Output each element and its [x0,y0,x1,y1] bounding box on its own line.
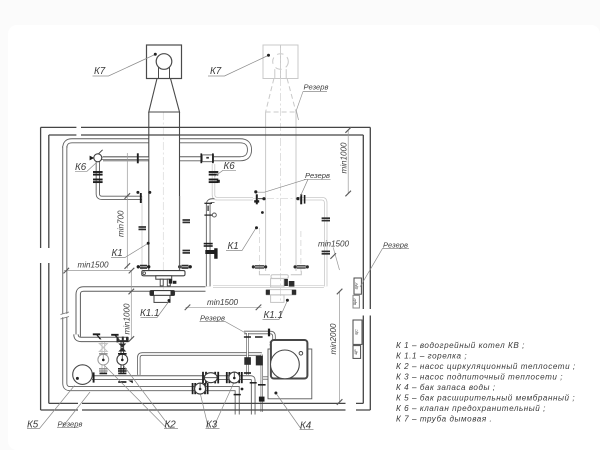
svg-text:min1500: min1500 [207,298,239,307]
svg-text:min700: min700 [117,210,126,237]
svg-text:Резерв: Резерв [305,171,330,180]
svg-text:К 2 – насос циркуляционный: К 2 – насос циркуляционный теплосети ; [396,362,576,371]
svg-text:К 6 – клапан предохранитель: К 6 – клапан предохранительный ; [396,404,546,413]
svg-text:ЩС: ЩС [355,329,359,335]
svg-text:К 5 – бак расширительный ме: К 5 – бак расширительный мембранный ; [396,394,575,403]
svg-text:К6: К6 [224,161,236,172]
svg-text:К2: К2 [165,420,177,431]
svg-text:min1500: min1500 [318,240,350,249]
svg-text:Резерв: Резерв [200,313,225,322]
svg-text:Резерв: Резерв [58,419,83,428]
svg-text:К 3 – насос подпиточный теп: К 3 – насос подпиточный теплосети ; [396,373,563,382]
svg-text:ЩР: ЩР [354,349,358,355]
svg-text:Резерв: Резерв [304,83,329,92]
svg-text:К 1 – водогрейный котел КВ: К 1 – водогрейный котел КВ ; [396,341,525,350]
svg-text:К1.1: К1.1 [264,310,283,321]
svg-text:К7: К7 [210,66,222,77]
svg-text:min1000: min1000 [340,142,349,174]
svg-text:К3: К3 [206,420,218,431]
svg-text:К1.1: К1.1 [140,308,159,319]
svg-text:К 1.1 – горелка ;: К 1.1 – горелка ; [396,352,467,361]
svg-text:min1000: min1000 [123,303,132,335]
svg-text:К6: К6 [75,162,87,173]
svg-text:К1: К1 [228,241,239,252]
svg-text:Резерв: Резерв [383,240,408,249]
svg-text:ЩАУ: ЩАУ [353,297,357,305]
svg-text:К5: К5 [27,420,39,431]
svg-text:ЩАУ: ЩАУ [355,282,359,290]
svg-text:К7: К7 [94,66,106,77]
svg-text:К4: К4 [300,421,312,432]
svg-text:min2000: min2000 [329,323,338,355]
svg-text:К 7 – труба дымовая .: К 7 – труба дымовая . [396,415,492,424]
svg-text:К 4 – бак запаса воды ;: К 4 – бак запаса воды ; [396,383,496,392]
svg-text:min1500: min1500 [78,260,110,269]
svg-text:К1: К1 [112,248,123,259]
